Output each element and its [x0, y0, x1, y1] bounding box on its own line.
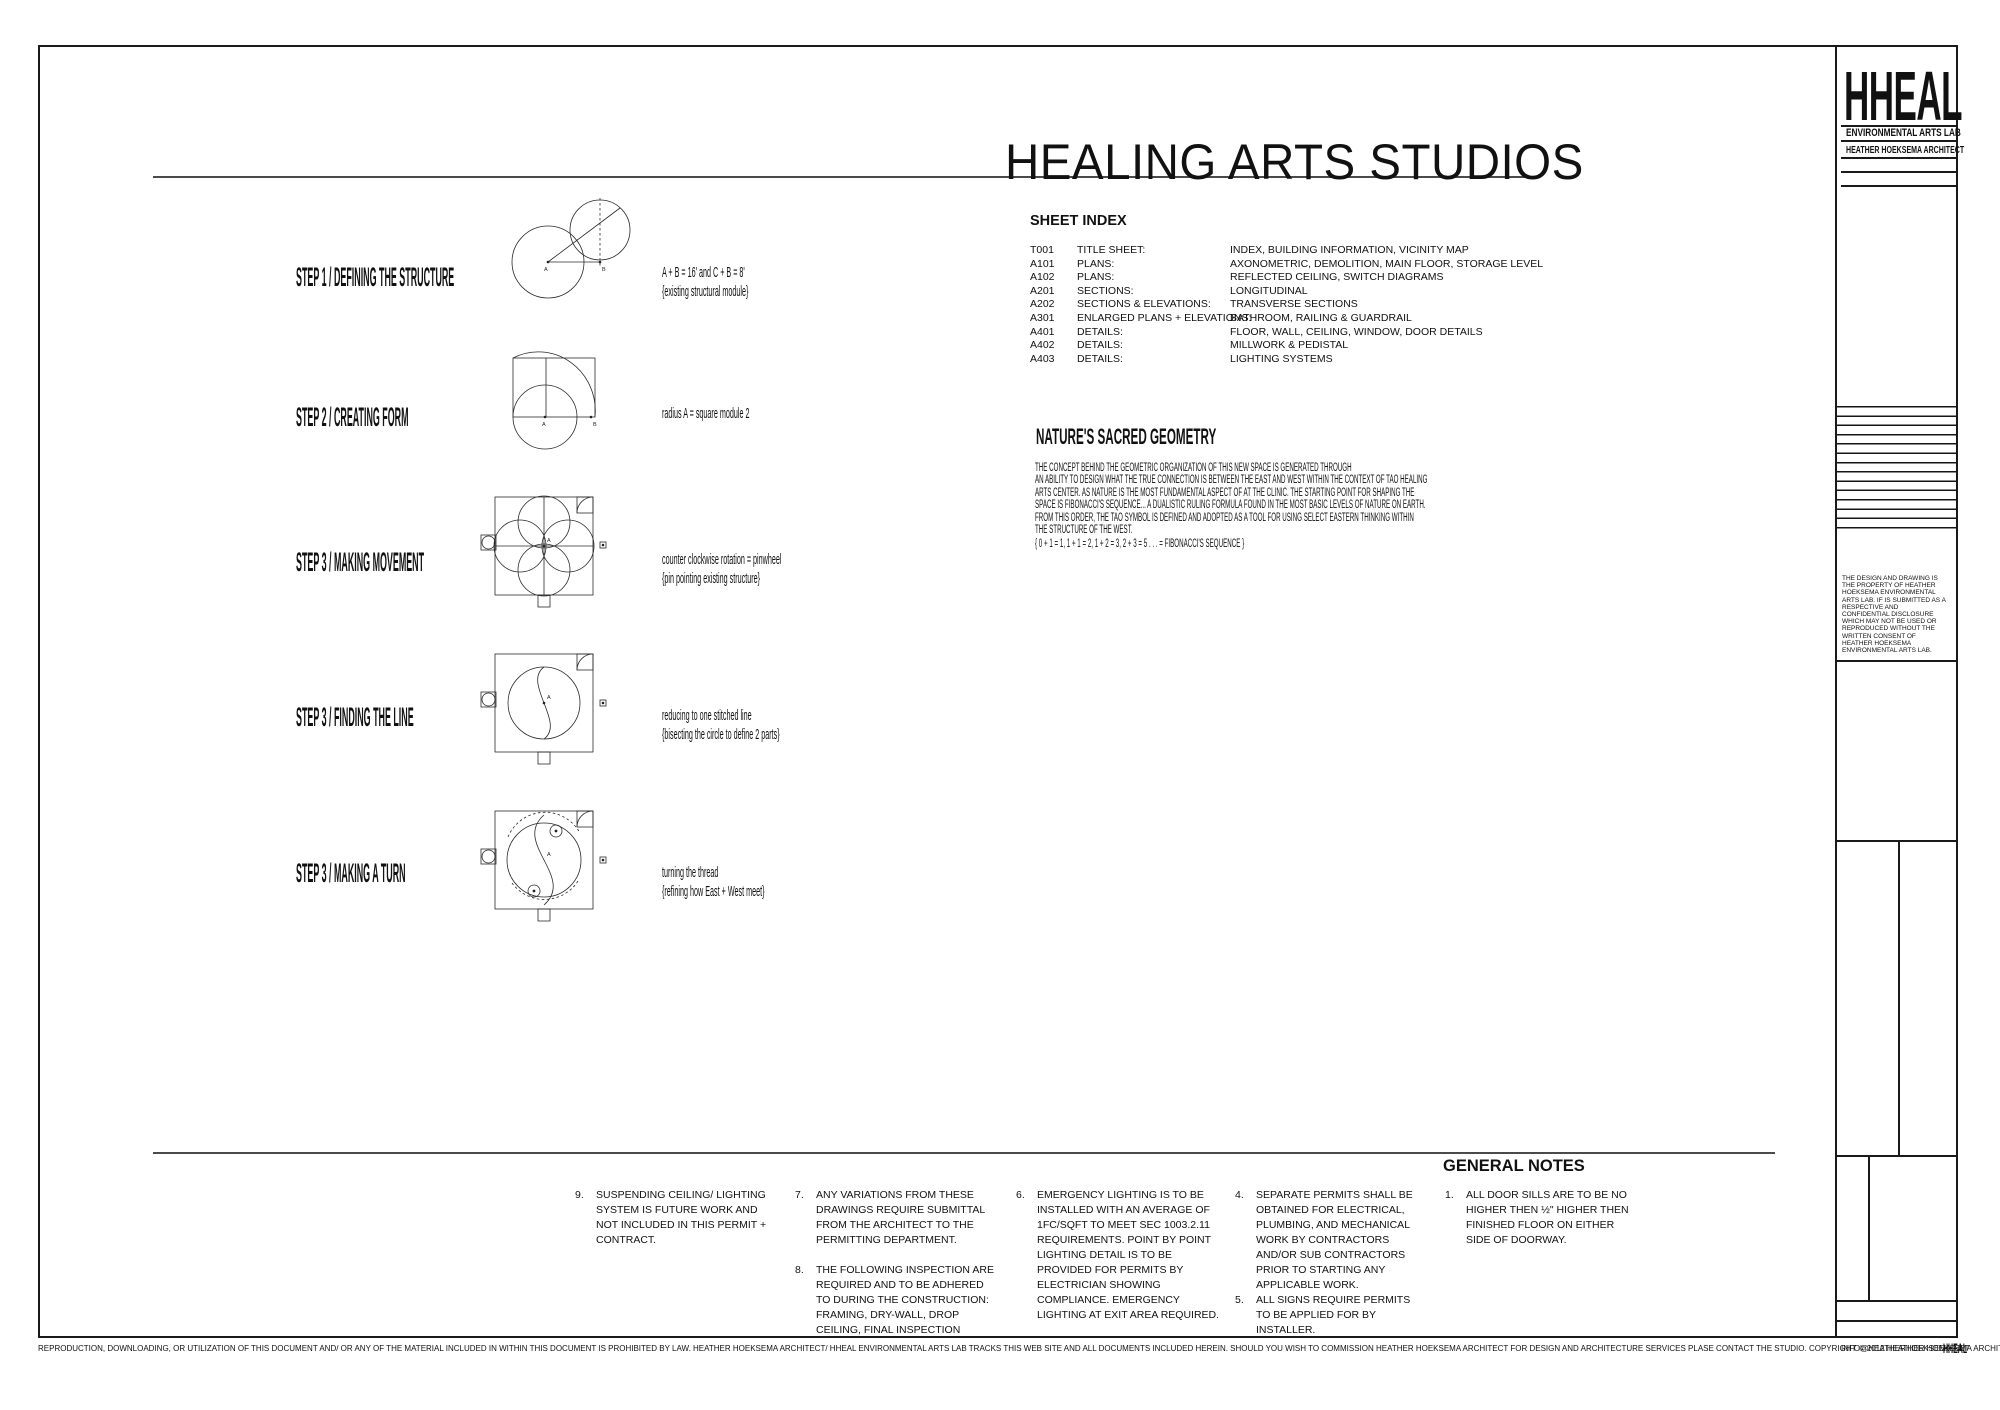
note-text: ANY VARIATIONS FROM THESE DRAWINGS REQUI…	[816, 1188, 1000, 1248]
note-5: 5.ALL SIGNS REQUIRE PERMITS TO BE APPLIE…	[1235, 1293, 1420, 1338]
step-3-turn-label: STEP 3 / MAKING A TURN	[296, 858, 406, 889]
sheet-desc: REFLECTED CEILING, SWITCH DIAGRAMS	[1230, 271, 1444, 283]
note-text: SEPARATE PERMITS SHALL BE OBTAINED FOR E…	[1256, 1188, 1420, 1293]
sheet-name: DETAILS:	[1077, 339, 1230, 351]
footer-hheal-brand: HHEAL	[1943, 1340, 1967, 1356]
note-number: 4.	[1235, 1188, 1244, 1203]
step-3-turn-note-line2: {refining how East + West meet}	[662, 882, 765, 901]
title-block-line	[1837, 660, 1958, 662]
note-number: 1.	[1445, 1188, 1454, 1203]
title-block-architect: HEATHER HOEKSEMA ARCHITECT	[1846, 144, 1964, 156]
sheet-number: A402	[1030, 339, 1077, 351]
sheet-number: A301	[1030, 312, 1077, 324]
page-title: HEALING ARTS STUDIOS	[1005, 133, 1584, 191]
general-notes-rule	[153, 1152, 1775, 1154]
paragraph-line: SPACE IS FIBONACCI'S SEQUENCE... A DUALI…	[1035, 499, 1427, 511]
title-block-line	[1841, 185, 1956, 187]
step-3-movement-diagram: A	[478, 478, 678, 633]
sheet-name: TITLE SHEET:	[1077, 244, 1230, 256]
step-3-line-annotation: reducing to one stitched line {bisecting…	[662, 706, 907, 744]
step-3-turn-note-line1: turning the thread	[662, 863, 765, 882]
step-3-line-note-line2: {bisecting the circle to define 2 parts}	[662, 725, 780, 744]
note-number: 9.	[575, 1188, 584, 1203]
title-block-line	[1841, 157, 1956, 159]
sheet-name: DETAILS:	[1077, 326, 1230, 338]
point-a-label: A	[544, 267, 548, 273]
footer-legal-text: REPRODUCTION, DOWNLOADING, OR UTILIZATIO…	[38, 1344, 2000, 1353]
sheet-index-row: A403DETAILS:LIGHTING SYSTEMS	[1030, 353, 1543, 367]
title-block-line	[1841, 140, 1956, 142]
sheet-index-row: T001TITLE SHEET:INDEX, BUILDING INFORMAT…	[1030, 244, 1543, 258]
sheet-desc: FLOOR, WALL, CEILING, WINDOW, DOOR DETAI…	[1230, 326, 1483, 338]
sheet-index-row: A301ENLARGED PLANS + ELEVATIONS:BATHROOM…	[1030, 312, 1543, 326]
sheet-number: A401	[1030, 326, 1077, 338]
general-notes-title: GENERAL NOTES	[1443, 1157, 1585, 1176]
step-1-label: STEP 1 / DEFINING THE STRUCTURE	[296, 262, 454, 293]
general-notes-column: 9.SUSPENDING CEILING/ LIGHTING SYSTEM IS…	[575, 1188, 777, 1248]
title-block-divider	[1835, 45, 1837, 1338]
title-block-line	[1837, 1300, 1958, 1302]
title-block-line	[1837, 1155, 1958, 1157]
sheet-desc: AXONOMETRIC, DEMOLITION, MAIN FLOOR, STO…	[1230, 258, 1543, 270]
sheet-number: A101	[1030, 258, 1077, 270]
sheet-number: A201	[1030, 285, 1077, 297]
title-block-disclaimer: THE DESIGN AND DRAWING IS THE PROPERTY O…	[1842, 575, 1946, 654]
point-a-label: A	[547, 852, 551, 858]
sheet-number: A102	[1030, 271, 1077, 283]
sheet-index-row: A202SECTIONS & ELEVATIONS:TRANSVERSE SEC…	[1030, 298, 1543, 312]
paragraph-line: ARTS CENTER. AS NATURE IS THE MOST FUNDA…	[1035, 487, 1427, 499]
step-1-note-line2: {existing structural module}	[662, 282, 748, 301]
general-notes-column: 7.ANY VARIATIONS FROM THESE DRAWINGS REQ…	[795, 1188, 1000, 1338]
title-block-cell-divider	[1898, 840, 1900, 1155]
step-3-movement-label: STEP 3 / MAKING MOVEMENT	[296, 547, 424, 578]
note-text: THE FOLLOWING INSPECTION ARE REQUIRED AN…	[816, 1263, 1000, 1338]
note-7: 7.ANY VARIATIONS FROM THESE DRAWINGS REQ…	[795, 1188, 1000, 1248]
sheet-number: A403	[1030, 353, 1077, 365]
step-3-turn-annotation: turning the thread {refining how East + …	[662, 863, 876, 901]
sheet-name: PLANS:	[1077, 271, 1230, 283]
step-2-diagram: A B	[500, 350, 640, 465]
title-block-line	[1841, 171, 1956, 173]
sheet-border	[38, 45, 1958, 1338]
step-3-turn-diagram: A	[478, 795, 678, 960]
note-number: 6.	[1016, 1188, 1025, 1203]
note-4: 4.SEPARATE PERMITS SHALL BE OBTAINED FOR…	[1235, 1188, 1420, 1293]
step-1-note-line1: A + B = 16' and C + B = 8'	[662, 263, 748, 282]
point-a-label: A	[547, 695, 551, 701]
sacred-geometry-paragraph: THE CONCEPT BEHIND THE GEOMETRIC ORGANIZ…	[1035, 462, 1762, 536]
sheet-index-row: A102PLANS:REFLECTED CEILING, SWITCH DIAG…	[1030, 271, 1543, 285]
note-text: ALL DOOR SILLS ARE TO BE NO HIGHER THEN …	[1466, 1188, 1640, 1248]
paragraph-line: THE CONCEPT BEHIND THE GEOMETRIC ORGANIZ…	[1035, 462, 1427, 474]
sheet-number: T001	[1030, 244, 1077, 256]
sheet-index-row: A101PLANS:AXONOMETRIC, DEMOLITION, MAIN …	[1030, 258, 1543, 272]
step-1-diagram: A B	[498, 192, 668, 322]
step-3-line-diagram: A	[478, 640, 678, 800]
title-block-cell-divider	[1868, 1155, 1870, 1300]
title-block-revision-stripes	[1837, 406, 1958, 536]
step-1-annotation: A + B = 16' and C + B = 8' {existing str…	[662, 263, 842, 301]
note-number: 7.	[795, 1188, 804, 1203]
sheet-desc: TRANSVERSE SECTIONS	[1230, 298, 1358, 310]
step-3-line-label: STEP 3 / FINDING THE LINE	[296, 702, 414, 733]
sheet-desc: BATHROOM, RAILING & GUARDRAIL	[1230, 312, 1412, 324]
point-b-label: B	[602, 267, 606, 273]
step-3-movement-note-line2: {pin pointing existing structure}	[662, 569, 781, 588]
sheet-desc: LIGHTING SYSTEMS	[1230, 353, 1333, 365]
note-text: ALL SIGNS REQUIRE PERMITS TO BE APPLIED …	[1256, 1293, 1420, 1338]
sheet-name: PLANS:	[1077, 258, 1230, 270]
note-number: 5.	[1235, 1293, 1244, 1308]
general-notes-column: 4.SEPARATE PERMITS SHALL BE OBTAINED FOR…	[1235, 1188, 1420, 1338]
hheal-logo: HHEAL	[1844, 68, 1962, 124]
sheet-name: SECTIONS & ELEVATIONS:	[1077, 298, 1230, 310]
note-8: 8.THE FOLLOWING INSPECTION ARE REQUIRED …	[795, 1263, 1000, 1338]
step-3-movement-annotation: counter clockwise rotation = pinwheel {p…	[662, 550, 911, 588]
paragraph-line: FROM THIS ORDER, THE TAO SYMBOL IS DEFIN…	[1035, 512, 1427, 524]
step-2-label: STEP 2 / CREATING FORM	[296, 402, 409, 433]
note-1: 1.ALL DOOR SILLS ARE TO BE NO HIGHER THE…	[1445, 1188, 1640, 1248]
fibonacci-sequence-note: { 0 + 1 = 1, 1 + 1 = 2, 1 + 2 = 3, 2 + 3…	[1035, 538, 1244, 550]
sheet-number: A202	[1030, 298, 1077, 310]
step-3-movement-note-line1: counter clockwise rotation = pinwheel	[662, 550, 781, 569]
note-text: EMERGENCY LIGHTING IS TO BE INSTALLED WI…	[1037, 1188, 1221, 1323]
general-notes-column: 6.EMERGENCY LIGHTING IS TO BE INSTALLED …	[1016, 1188, 1221, 1323]
point-a-label: A	[542, 422, 546, 428]
step-2-annotation: radius A = square module 2	[662, 404, 844, 423]
title-block-org: ENVIRONMENTAL ARTS LAB	[1846, 127, 1961, 139]
sacred-geometry-title: NATURE'S SACRED GEOMETRY	[1036, 424, 1216, 450]
point-b-label: B	[593, 422, 597, 428]
sheet-index-row: A201SECTIONS:LONGITUDINAL	[1030, 285, 1543, 299]
step-3-line-note-line1: reducing to one stitched line	[662, 706, 780, 725]
title-block-line	[1837, 1320, 1958, 1322]
note-number: 8.	[795, 1263, 804, 1278]
step-2-note-line1: radius A = square module 2	[662, 404, 749, 423]
note-9: 9.SUSPENDING CEILING/ LIGHTING SYSTEM IS…	[575, 1188, 777, 1248]
sheet-name: SECTIONS:	[1077, 285, 1230, 297]
paragraph-line: THE STRUCTURE OF THE WEST.	[1035, 524, 1427, 536]
sheet-index-title: SHEET INDEX	[1030, 213, 1127, 229]
sheet-index-row: A402DETAILS:MILLWORK & PEDISTAL	[1030, 339, 1543, 353]
sheet-desc: INDEX, BUILDING INFORMATION, VICINITY MA…	[1230, 244, 1469, 256]
point-a-label: A	[547, 538, 551, 544]
sheet-name: ENLARGED PLANS + ELEVATIONS:	[1077, 312, 1230, 324]
general-notes-column: 1.ALL DOOR SILLS ARE TO BE NO HIGHER THE…	[1445, 1188, 1640, 1248]
note-6: 6.EMERGENCY LIGHTING IS TO BE INSTALLED …	[1016, 1188, 1221, 1323]
architectural-title-sheet: HEALING ARTS STUDIOS STEP 1 / DEFINING T…	[0, 0, 2000, 1410]
sheet-desc: MILLWORK & PEDISTAL	[1230, 339, 1348, 351]
sheet-index-table: T001TITLE SHEET:INDEX, BUILDING INFORMAT…	[1030, 244, 1543, 366]
sheet-index-row: A401DETAILS:FLOOR, WALL, CEILING, WINDOW…	[1030, 326, 1543, 340]
paragraph-line: AN ABILITY TO DESIGN WHAT THE TRUE CONNE…	[1035, 474, 1427, 486]
note-text: SUSPENDING CEILING/ LIGHTING SYSTEM IS F…	[596, 1188, 777, 1248]
sheet-name: DETAILS:	[1077, 353, 1230, 365]
sheet-desc: LONGITUDINAL	[1230, 285, 1308, 297]
